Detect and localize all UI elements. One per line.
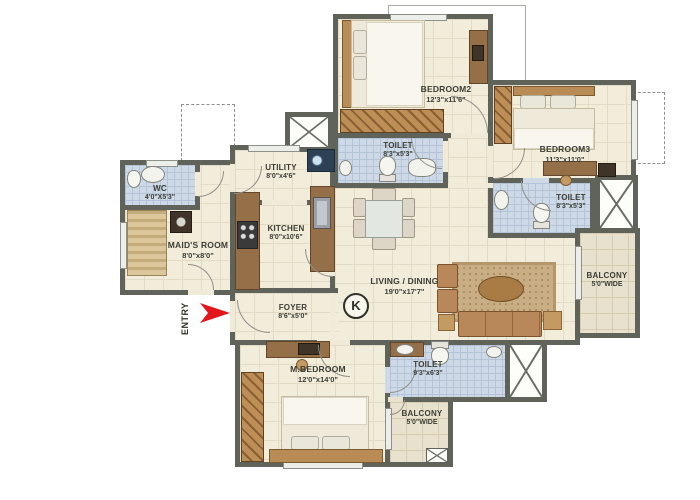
sofa [458, 311, 542, 337]
opening [448, 183, 493, 188]
coffee-table [478, 276, 524, 302]
wardrobe [241, 372, 264, 462]
side-table [438, 314, 455, 331]
washbasin [494, 190, 509, 210]
window [631, 100, 638, 160]
room-label-foyer: FOYER8'6"x5'0" [262, 303, 324, 322]
washbasin [141, 166, 165, 183]
room-label-utility: UTILITY8'0"x4'6" [245, 163, 317, 182]
room-label-wc: WC4'0"X5'3" [130, 184, 190, 203]
dining-chair [372, 237, 396, 250]
hallway-floor [448, 138, 493, 188]
washbasin [339, 160, 352, 176]
shower [486, 346, 502, 358]
pillow [353, 30, 367, 54]
entry-opening [230, 301, 235, 332]
dashed-ledge-topleft [181, 104, 235, 166]
room-label-maids: MAID'S ROOM8'0"x8'0" [148, 240, 248, 260]
tv-unit [472, 45, 484, 61]
window [120, 222, 127, 269]
room-label-toilet-right: TOILET8'3"x5'3" [545, 193, 597, 212]
tv-unit [298, 343, 320, 355]
pillow [520, 95, 546, 109]
room-label-balcony-right: BALCONY5'0"WIDE [579, 271, 635, 290]
opening [488, 146, 493, 177]
dining-chair [402, 198, 415, 217]
laptop [598, 163, 616, 177]
room-label-toilet-master: TOILET9'3"x6'3" [398, 360, 458, 379]
shaft-bottom [505, 340, 547, 402]
opening [188, 290, 214, 295]
window [248, 145, 300, 152]
wardrobe [494, 86, 512, 144]
room-label-living: LIVING / DINING19'0"x17'7" [352, 276, 457, 296]
opening [330, 293, 335, 340]
bed-headboard [269, 449, 383, 463]
compass-marker: K [343, 293, 369, 319]
wardrobe [340, 109, 444, 133]
room-label-balcony-bottom: BALCONY5'0"WIDE [393, 409, 451, 428]
bed-blanket [283, 397, 367, 425]
pillow [291, 436, 319, 450]
room-label-bedroom3: BEDROOM311'3"x11'0" [515, 144, 615, 164]
opening [443, 141, 448, 172]
opening [262, 200, 307, 205]
room-label-toilet-top: TOILET8'3"x5'3" [362, 141, 434, 160]
dining-chair [402, 219, 415, 238]
dining-table [365, 200, 403, 238]
pillow [322, 436, 350, 450]
room-label-kitchen: KITCHEN8'0"x10'6" [250, 224, 322, 243]
stool [560, 175, 572, 186]
washbasin [396, 344, 414, 355]
shaft-right [595, 175, 638, 233]
pillow [353, 56, 367, 80]
shaft-small [426, 448, 448, 463]
floor-plan: BEDROOM212'3"x11'6" TOILET8'3"x5'3" BEDR… [0, 0, 700, 500]
side-table [170, 211, 192, 233]
room-label-master-bedroom: M.BEDROOM12'0"x14'0" [258, 364, 378, 384]
pillow [550, 95, 576, 109]
opening [451, 133, 488, 138]
entry-label: ENTRY [180, 291, 190, 335]
entry-arrow-icon [200, 302, 230, 324]
room-label-bedroom2: BEDROOM212'3"x11'6" [396, 84, 496, 104]
window [283, 462, 363, 469]
side-table [543, 311, 562, 330]
